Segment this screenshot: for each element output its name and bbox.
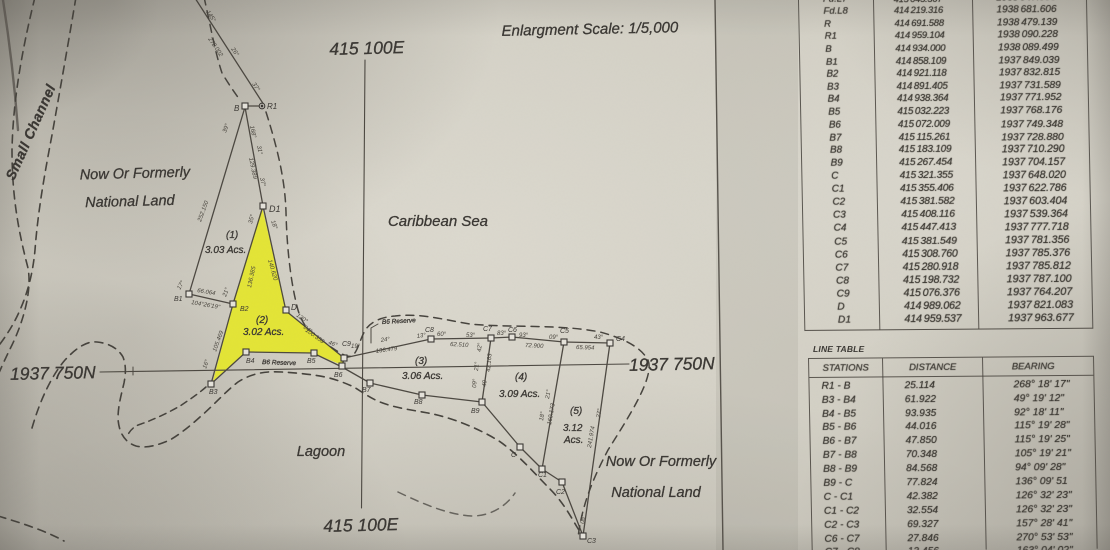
svg-text:35°: 35° [248,214,256,225]
svg-text:3.06 Acs.: 3.06 Acs. [402,371,443,382]
svg-text:16°: 16° [202,359,211,370]
svg-text:C7: C7 [483,326,493,333]
svg-text:Enlargment Scale: 1/5,000: Enlargment Scale: 1/5,000 [501,19,679,40]
svg-text:B7: B7 [362,387,372,394]
svg-text:Small Channel: Small Channel [2,81,59,182]
svg-text:C6: C6 [508,327,517,334]
svg-text:18°: 18° [269,220,278,231]
svg-text:09°: 09° [472,378,479,388]
svg-text:1937 750N: 1937 750N [629,353,715,375]
svg-text:B1: B1 [174,296,183,303]
svg-text:27°: 27° [596,408,604,420]
svg-text:60°: 60° [437,332,447,338]
svg-text:13°: 13° [416,333,426,340]
svg-text:(5): (5) [570,406,582,417]
svg-text:B6: B6 [334,372,343,379]
svg-text:National Land: National Land [611,485,701,501]
svg-text:129.389: 129.389 [247,157,258,180]
svg-text:42°: 42° [477,342,484,352]
svg-text:C2: C2 [556,489,565,496]
svg-text:D: D [291,303,297,312]
svg-text:40: 40 [482,379,489,387]
svg-text:415 100E: 415 100E [329,37,405,59]
svg-text:B5: B5 [307,358,316,365]
svg-text:93°: 93° [519,333,529,339]
svg-text:3.12: 3.12 [563,423,583,434]
svg-text:B2: B2 [240,306,249,313]
svg-text:3.03 Acs.: 3.03 Acs. [205,245,246,256]
svg-text:21°: 21° [222,287,231,299]
svg-text:72.900: 72.900 [525,343,544,350]
svg-text:B3: B3 [209,389,218,396]
svg-text:D1: D1 [269,204,281,214]
svg-text:17°: 17° [177,280,187,291]
svg-text:(3): (3) [415,356,427,367]
svg-text:Now Or Formerly: Now Or Formerly [606,454,717,470]
svg-text:18°: 18° [539,411,547,422]
svg-text:43°: 43° [594,335,604,341]
svg-text:53°: 53° [466,333,476,339]
svg-text:3.09 Acs.: 3.09 Acs. [499,389,540,400]
svg-text:09°: 09° [549,335,559,341]
svg-text:B6 Reserve: B6 Reserve [382,317,417,326]
svg-text:C3: C3 [587,538,596,545]
svg-text:C4: C4 [616,336,625,343]
svg-text:415 100E: 415 100E [323,514,399,536]
svg-text:21°: 21° [474,361,481,372]
svg-text:B8: B8 [414,399,423,406]
svg-text:Acs.: Acs. [563,435,583,446]
svg-text:62.510: 62.510 [450,342,469,349]
svg-text:C1: C1 [538,472,547,479]
svg-text:B: B [234,104,240,113]
svg-text:1937 750N: 1937 750N [10,362,96,384]
svg-text:24°: 24° [379,337,390,344]
svg-text:252.150: 252.150 [197,200,211,224]
svg-text:Lagoon: Lagoon [297,444,345,460]
svg-text:(4): (4) [515,372,527,383]
svg-text:08°: 08° [580,514,588,525]
svg-text:104°26'19": 104°26'19" [191,300,221,311]
svg-text:168°: 168° [248,125,257,139]
svg-text:39°: 39° [222,123,231,134]
svg-text:42.163: 42.163 [486,353,494,372]
svg-text:160.173: 160.173 [547,402,557,425]
svg-text:B4: B4 [246,358,255,365]
svg-text:136.479: 136.479 [375,346,398,355]
svg-text:C5: C5 [560,328,569,335]
svg-text:National Land: National Land [85,193,176,211]
svg-text:B9: B9 [471,408,480,415]
svg-text:(1): (1) [226,230,238,241]
svg-text:(2): (2) [256,315,268,326]
svg-text:C9: C9 [342,341,351,348]
svg-text:B6 Reserve: B6 Reserve [262,359,297,367]
svg-text:3.02 Acs.: 3.02 Acs. [243,327,284,338]
svg-text:37°: 37° [250,82,260,93]
svg-text:65.954: 65.954 [576,345,595,352]
svg-text:145°: 145° [204,10,216,24]
svg-text:31°: 31° [255,145,263,156]
svg-text:19°: 19° [351,344,361,350]
svg-text:21°: 21° [545,389,553,401]
svg-text:C8: C8 [425,327,434,334]
svg-text:R1: R1 [267,102,277,111]
svg-text:Caribbean Sea: Caribbean Sea [388,213,488,230]
svg-text:83°: 83° [497,331,507,337]
svg-text:Now Or Formerly: Now Or Formerly [80,165,191,184]
